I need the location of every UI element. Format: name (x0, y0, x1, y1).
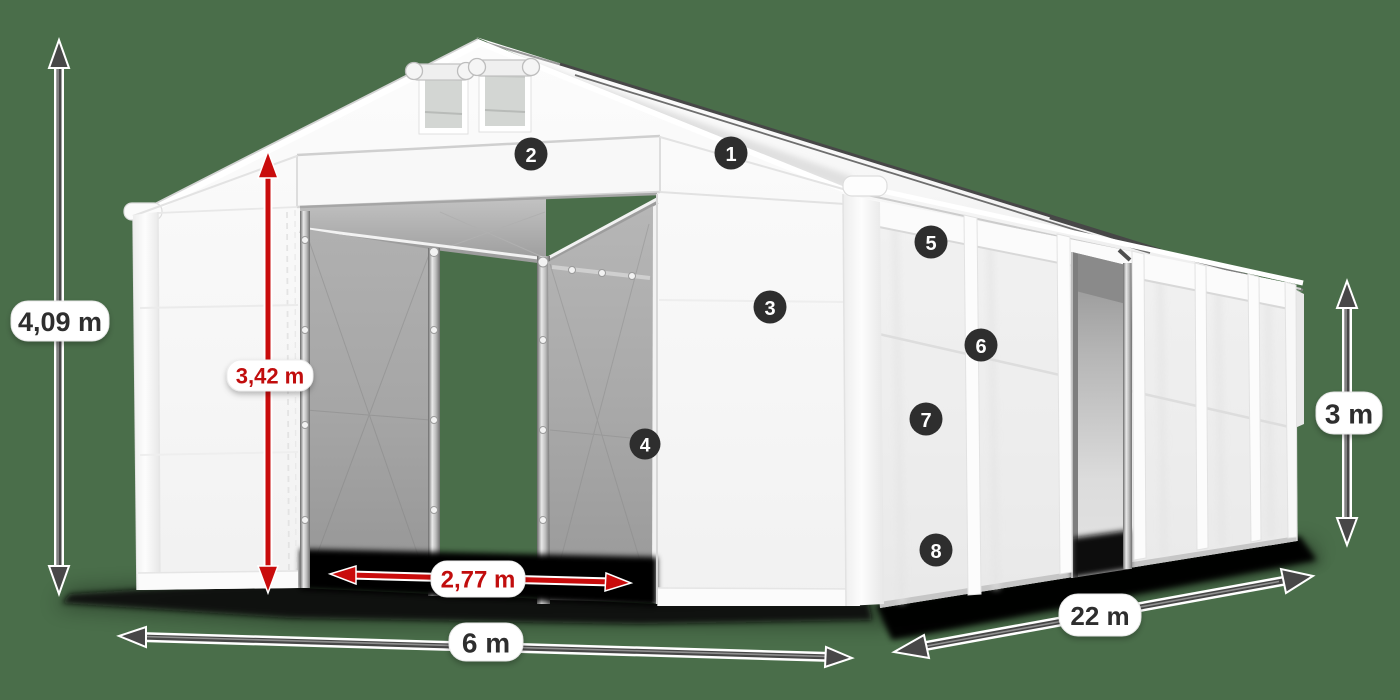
svg-text:4,09 m: 4,09 m (18, 307, 102, 337)
svg-text:3,42 m: 3,42 m (236, 364, 305, 389)
svg-text:2,77 m: 2,77 m (441, 567, 516, 594)
svg-text:4: 4 (640, 436, 651, 457)
svg-text:22 m: 22 m (1070, 601, 1129, 631)
svg-text:6: 6 (975, 336, 986, 358)
svg-text:8: 8 (930, 541, 941, 563)
svg-text:5: 5 (925, 233, 936, 255)
svg-text:6 m: 6 m (462, 628, 510, 659)
svg-text:3: 3 (764, 298, 775, 320)
svg-text:1: 1 (725, 144, 736, 166)
svg-text:7: 7 (920, 410, 931, 432)
svg-text:2: 2 (525, 145, 536, 167)
svg-text:3 m: 3 m (1325, 399, 1373, 430)
